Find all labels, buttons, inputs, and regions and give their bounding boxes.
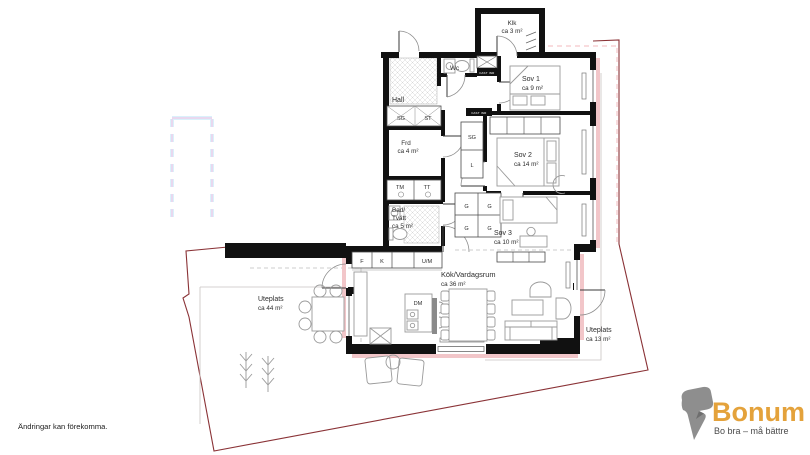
floorplan-page: FAST INR FAST INR SG ST TM TT SG L G G G… — [0, 0, 810, 455]
wardrobe-g-label: G — [464, 226, 468, 232]
bonum-tagline: Bo bra – må bättre — [714, 426, 789, 436]
bonum-wordmark: Bonum — [712, 397, 805, 427]
shaft-label: FAST INR — [479, 71, 495, 75]
sov1-label: Sov 1 — [522, 76, 540, 83]
dishwasher-label: DM — [414, 301, 423, 307]
closet-st-label: ST — [424, 116, 432, 122]
wardrobe-g-label: G — [464, 204, 468, 210]
klk-label: Klk — [508, 20, 518, 27]
disclaimer-text: Ändringar kan förekomma. — [18, 422, 107, 431]
kitchen-fixtures: DM — [354, 272, 445, 344]
sov3-label: Sov 3 — [494, 230, 512, 237]
sov3-area: ca 10 m² — [494, 239, 519, 246]
kok-area: ca 36 m² — [441, 281, 466, 288]
klk-area: ca 3 m² — [502, 28, 523, 35]
sov2-area: ca 14 m² — [514, 161, 539, 168]
uteplats-right-label: Uteplats — [586, 327, 612, 334]
sov1-area: ca 9 m² — [522, 85, 543, 92]
bad-label-1: Bad/ — [392, 207, 405, 214]
uteplats-right-area: ca 13 m² — [586, 336, 611, 343]
dryer-label: TT — [424, 185, 431, 191]
uteplats-left-area: ca 44 m² — [258, 305, 283, 312]
hall-label: Hall — [392, 97, 405, 104]
wardrobe-g-label: G — [487, 204, 491, 210]
freezer-label: K — [380, 259, 384, 265]
bad-label-2: Tvätt — [392, 215, 406, 222]
frd-area: ca 4 m² — [398, 148, 419, 155]
wc-label: Wc — [450, 65, 459, 72]
fridge-label: F — [360, 259, 364, 265]
bonum-ribbon-icon — [682, 387, 714, 440]
adjacent-outline — [172, 118, 212, 221]
floorplan-drawing: FAST INR FAST INR SG ST TM TT SG L G G G… — [0, 0, 810, 455]
oven-micro-label: U/M — [422, 259, 433, 265]
sov2-label: Sov 2 — [514, 152, 532, 159]
frd-label: Frd — [401, 140, 411, 147]
bad-area: ca 5 m² — [392, 223, 413, 230]
shaft-label: FAST INR — [471, 111, 487, 115]
washer-label: TM — [396, 185, 404, 191]
closet-sg-label: SG — [397, 116, 405, 122]
kok-label: Kök/Vardagsrum — [441, 270, 496, 279]
livingroom-furniture — [441, 250, 574, 341]
bonum-logo: Bonum Bo bra – må bättre — [682, 387, 805, 440]
closet-sg2-label: SG — [468, 135, 476, 141]
uteplats-left-label: Uteplats — [258, 296, 284, 303]
wardrobe-g-label: G — [487, 226, 491, 232]
closet-l-label: L — [470, 163, 473, 169]
